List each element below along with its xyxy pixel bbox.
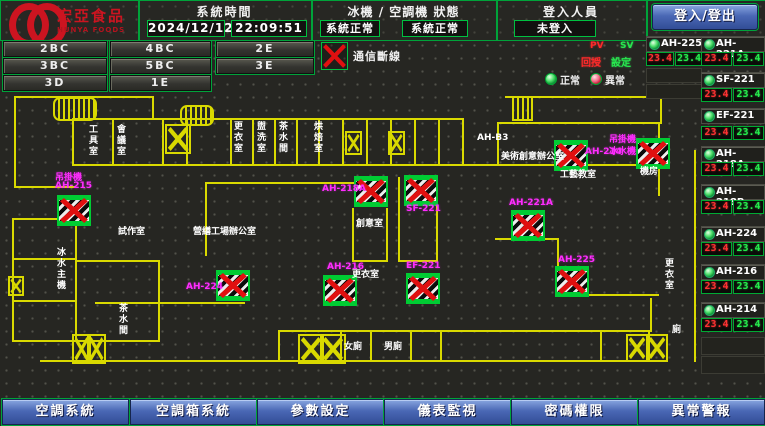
x-glyph <box>59 197 89 224</box>
nav-button-param-settings[interactable]: 參數設定 <box>257 399 384 425</box>
unit-name-tile-ah-224[interactable]: AH-224 <box>701 226 765 242</box>
wall-segment <box>72 164 464 166</box>
equipment-icon-ah-221a[interactable] <box>511 210 545 241</box>
equipment-label: AH-215 <box>55 181 92 191</box>
unit-name-tile-sf-221[interactable]: SF-221 <box>701 72 765 88</box>
wall-segment <box>370 332 372 360</box>
unit-name-label: AH-216 <box>716 266 757 277</box>
nav-button-alarm[interactable]: 異常警報 <box>638 399 765 425</box>
unit-pv-value: 23.4 <box>646 52 674 66</box>
x-glyph <box>648 336 666 360</box>
wall-segment <box>14 96 16 188</box>
room-label: 會議室 <box>114 124 127 157</box>
wall-segment <box>72 118 464 120</box>
unit-status-led <box>704 149 715 160</box>
x-glyph <box>300 336 322 362</box>
x-box-icon <box>320 334 346 364</box>
nav-button-meter-monitor[interactable]: 儀表監視 <box>384 399 511 425</box>
wall-segment <box>158 260 160 342</box>
x-box-icon <box>345 131 362 155</box>
unit-name-tile-ah-214[interactable]: AH-214 <box>701 302 765 318</box>
nav-button-ahu-system[interactable]: 空調箱系統 <box>130 399 257 425</box>
nav-button-password-auth[interactable]: 密碼權限 <box>511 399 638 425</box>
wall-segment <box>366 118 368 166</box>
empty-slot <box>646 84 702 99</box>
unit-status-led <box>704 187 715 198</box>
equipment-icon-ah-215[interactable] <box>57 195 91 226</box>
room-label: 創意室 <box>356 216 383 229</box>
x-glyph <box>10 278 22 294</box>
unit-pv-value: 23.4 <box>701 200 732 214</box>
x-box-icon <box>388 131 405 155</box>
wall-segment <box>410 332 412 360</box>
x-box-icon <box>8 276 24 296</box>
room-label: AH-B3 <box>477 133 508 143</box>
equipment-label: SF-221 <box>406 204 441 214</box>
wall-segment <box>414 118 416 166</box>
unit-name-label: AH-214 <box>716 304 757 315</box>
unit-pv-value: 23.4 <box>701 88 732 102</box>
wall-segment <box>352 208 354 262</box>
x-glyph <box>628 336 646 360</box>
unit-sv-value: 23.4 <box>733 280 764 294</box>
wall-segment <box>386 208 388 262</box>
wall-segment <box>497 122 499 166</box>
unit-name-tile-ah-225[interactable]: AH-225 <box>646 36 704 52</box>
equipment-label: AH-224 <box>186 282 223 292</box>
room-label: 美術創意辦公室 <box>501 149 564 162</box>
wall-segment <box>497 122 660 124</box>
empty-slot <box>701 356 765 374</box>
unit-pv-value: 23.4 <box>701 318 732 332</box>
empty-slot <box>646 68 702 83</box>
unit-name-label: SF-221 <box>716 74 755 85</box>
x-box-icon <box>87 334 106 364</box>
x-glyph <box>325 277 355 304</box>
wall-segment <box>152 96 154 120</box>
equipment-icon-ef-221[interactable] <box>406 273 440 304</box>
x-glyph <box>390 133 403 153</box>
room-label: 工具室 <box>86 124 99 157</box>
room-label: 冰水主機 <box>54 247 67 291</box>
unit-pv-value: 23.4 <box>701 162 732 176</box>
x-glyph <box>322 336 344 362</box>
x-glyph <box>167 126 189 152</box>
room-label: 烘焙室 <box>311 121 324 154</box>
wall-segment <box>650 298 652 332</box>
x-glyph <box>89 336 104 362</box>
unit-sv-value: 23.4 <box>675 52 703 66</box>
stair-icon <box>180 105 214 126</box>
unit-pv-value: 23.4 <box>701 52 732 66</box>
x-box-icon <box>626 334 648 362</box>
equipment-icon-sf-221[interactable] <box>404 175 438 206</box>
x-glyph <box>638 140 668 167</box>
room-label: 男廁 <box>384 339 402 352</box>
unit-pv-value: 23.4 <box>701 242 732 256</box>
x-box-icon <box>646 334 668 362</box>
unit-sv-value: 23.4 <box>733 242 764 256</box>
wall-segment <box>600 332 602 360</box>
wall-segment <box>162 118 164 166</box>
wall-segment <box>12 300 76 302</box>
wall-segment <box>462 118 464 166</box>
unit-status-led <box>649 39 660 50</box>
wall-segment <box>342 118 344 166</box>
room-label: 更衣室 <box>352 267 379 280</box>
room-label: 茶水間 <box>276 121 289 154</box>
unit-name-tile-ef-221[interactable]: EF-221 <box>701 108 765 124</box>
unit-status-led <box>704 111 715 122</box>
equipment-label: AH-221A <box>509 198 553 208</box>
equipment-label: EF-221 <box>406 261 441 271</box>
x-glyph <box>347 133 360 153</box>
unit-name-tile-ah-218a[interactable]: AH-218A <box>701 146 765 162</box>
wall-segment <box>278 330 650 332</box>
unit-sv-value: 23.4 <box>733 88 764 102</box>
wall-segment <box>72 118 74 166</box>
room-label: 更衣室 <box>231 121 244 154</box>
unit-sv-value: 23.4 <box>733 318 764 332</box>
equipment-label: AH-218A <box>322 184 366 194</box>
equipment-icon-ah-225[interactable] <box>555 266 589 297</box>
room-label: 試作室 <box>118 224 145 237</box>
unit-name-tile-ah-216[interactable]: AH-216 <box>701 264 765 280</box>
wall-segment <box>694 150 696 362</box>
equipment-label: AH-225 <box>558 255 595 265</box>
wall-segment <box>205 182 207 256</box>
unit-status-led <box>704 229 715 240</box>
unit-status-led <box>704 75 715 86</box>
x-glyph <box>408 275 438 302</box>
room-label: 營繕工場辦公室 <box>193 224 256 237</box>
wall-segment <box>75 218 77 342</box>
unit-sv-value: 23.4 <box>733 162 764 176</box>
empty-slot <box>701 337 765 355</box>
wall-segment <box>438 118 440 166</box>
unit-sv-value: 23.4 <box>733 126 764 140</box>
unit-status-led <box>704 305 715 316</box>
x-glyph <box>406 177 436 204</box>
stair-icon <box>512 96 533 121</box>
unit-name-label: AH-224 <box>716 228 757 239</box>
unit-pv-value: 23.4 <box>701 280 732 294</box>
wall-segment <box>278 330 280 362</box>
x-glyph <box>557 268 587 295</box>
unit-name-label: EF-221 <box>716 110 754 121</box>
wall-segment <box>296 118 298 166</box>
unit-pv-value: 23.4 <box>701 126 732 140</box>
unit-name-label: AH-225 <box>661 38 702 49</box>
room-label: 工藝教室 <box>560 167 596 180</box>
unit-sv-value: 23.4 <box>733 52 764 66</box>
wall-segment <box>75 260 159 262</box>
room-label: 盥洗室 <box>254 121 267 154</box>
nav-button-ac-system[interactable]: 空調系統 <box>2 399 129 425</box>
room-label: 茶水間 <box>116 303 129 336</box>
unit-name-tile-ah-221a[interactable]: AH-221A <box>701 36 765 52</box>
x-glyph <box>513 212 543 239</box>
unit-sv-value: 23.4 <box>733 200 764 214</box>
equipment-label: 冰水機 <box>609 144 636 157</box>
stair-icon <box>53 97 97 121</box>
unit-status-led <box>704 267 715 278</box>
wall-segment <box>398 177 400 262</box>
unit-name-tile-ah-218b[interactable]: AH-218B <box>701 184 765 200</box>
wall-segment <box>440 332 442 360</box>
x-box-icon <box>165 124 191 154</box>
unit-status-led <box>704 39 715 50</box>
room-label: 女廁 <box>344 339 362 352</box>
room-label: 廁 <box>672 322 681 335</box>
wall-segment <box>660 96 662 124</box>
room-label: 更衣室 <box>662 258 675 291</box>
room-label: 機房 <box>640 164 658 177</box>
